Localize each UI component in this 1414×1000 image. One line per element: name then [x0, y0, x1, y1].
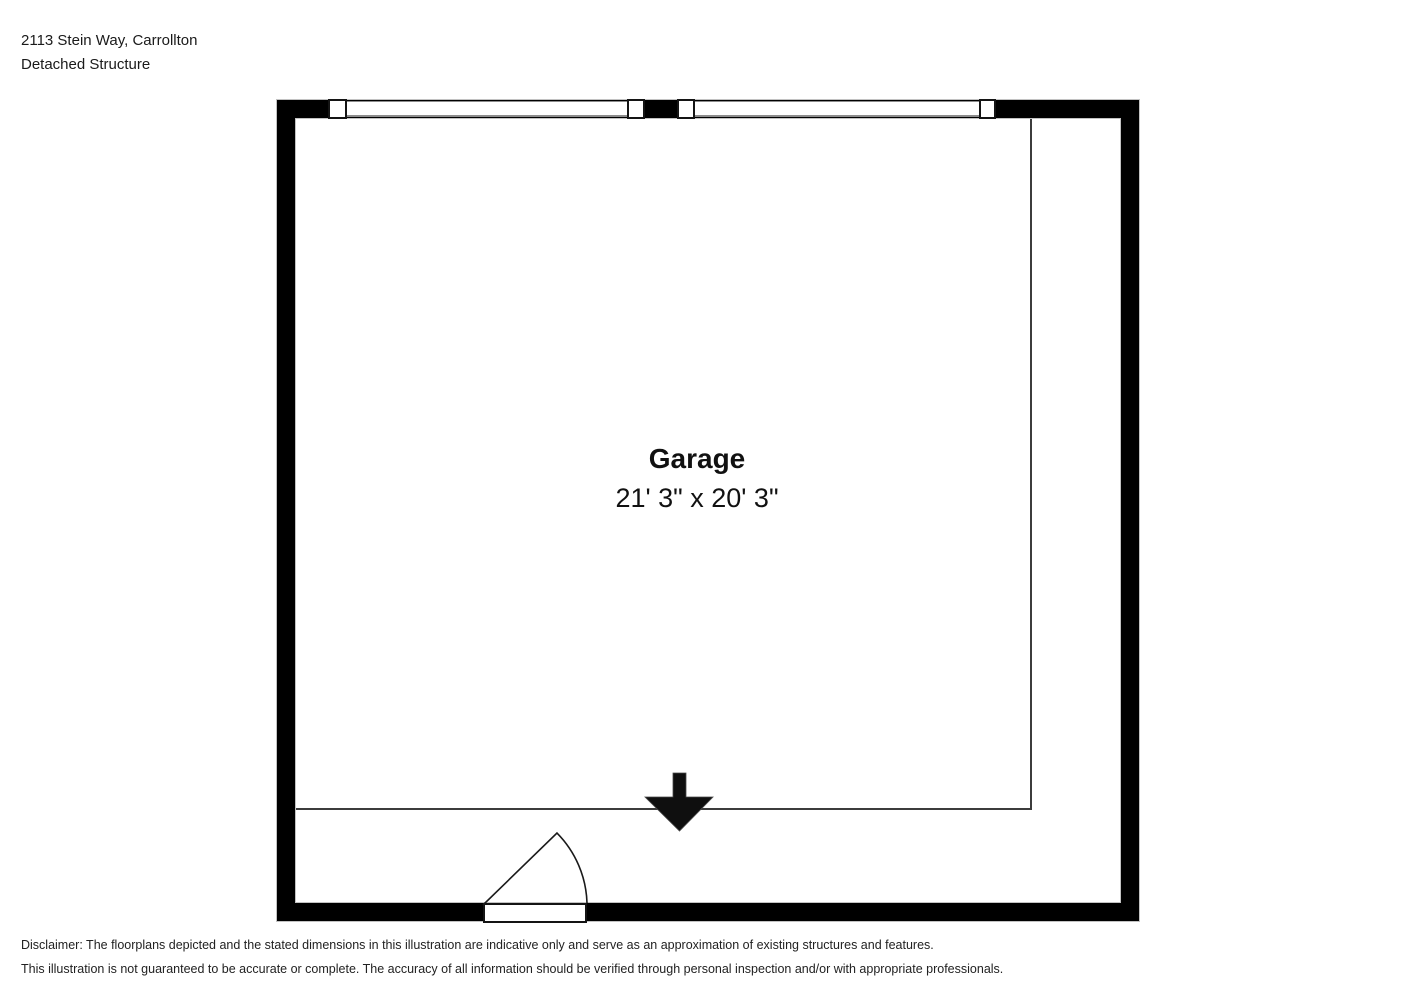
- floorplan-page: 2113 Stein Way, Carrollton Detached Stru…: [0, 0, 1414, 1000]
- room-label-block: Garage 21' 3" x 20' 3": [277, 441, 1117, 516]
- window: [347, 101, 627, 117]
- window-frame-end: [328, 99, 347, 119]
- disclaimer-line-1: Disclaimer: The floorplans depicted and …: [21, 939, 1003, 952]
- structure-subtitle: Detached Structure: [21, 53, 197, 77]
- room-dimensions: 21' 3" x 20' 3": [277, 480, 1117, 516]
- room-name: Garage: [277, 441, 1117, 477]
- disclaimer-line-2: This illustration is not guaranteed to b…: [21, 963, 1003, 976]
- header: 2113 Stein Way, Carrollton Detached Stru…: [21, 29, 197, 77]
- window-frame-end: [627, 99, 645, 119]
- window-frame-end: [677, 99, 695, 119]
- floorplan-drawing: Garage 21' 3" x 20' 3": [277, 100, 1139, 921]
- address-title: 2113 Stein Way, Carrollton: [21, 29, 197, 53]
- door-threshold: [483, 903, 587, 923]
- window-frame-end: [979, 99, 996, 119]
- window: [695, 101, 979, 117]
- disclaimer: Disclaimer: The floorplans depicted and …: [21, 939, 1003, 987]
